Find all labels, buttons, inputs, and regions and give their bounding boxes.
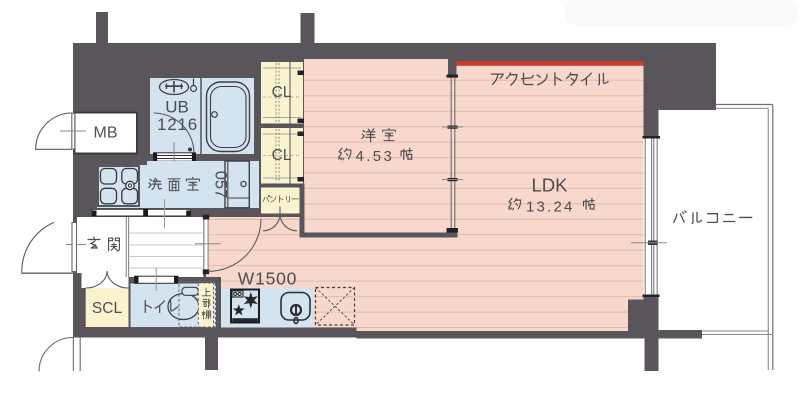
svg-text:W1500: W1500 <box>238 269 297 289</box>
svg-text:4.53: 4.53 <box>356 148 395 165</box>
svg-text:13.24: 13.24 <box>526 198 575 215</box>
svg-text:UB: UB <box>165 98 189 117</box>
svg-text:LDK: LDK <box>532 174 569 195</box>
svg-text:057: 057 <box>212 171 230 199</box>
svg-text:MB: MB <box>94 125 118 142</box>
svg-text:CL: CL <box>272 147 292 164</box>
svg-text:CL: CL <box>272 84 292 101</box>
svg-text:SCL: SCL <box>92 300 123 317</box>
svg-text:1216: 1216 <box>157 115 198 134</box>
